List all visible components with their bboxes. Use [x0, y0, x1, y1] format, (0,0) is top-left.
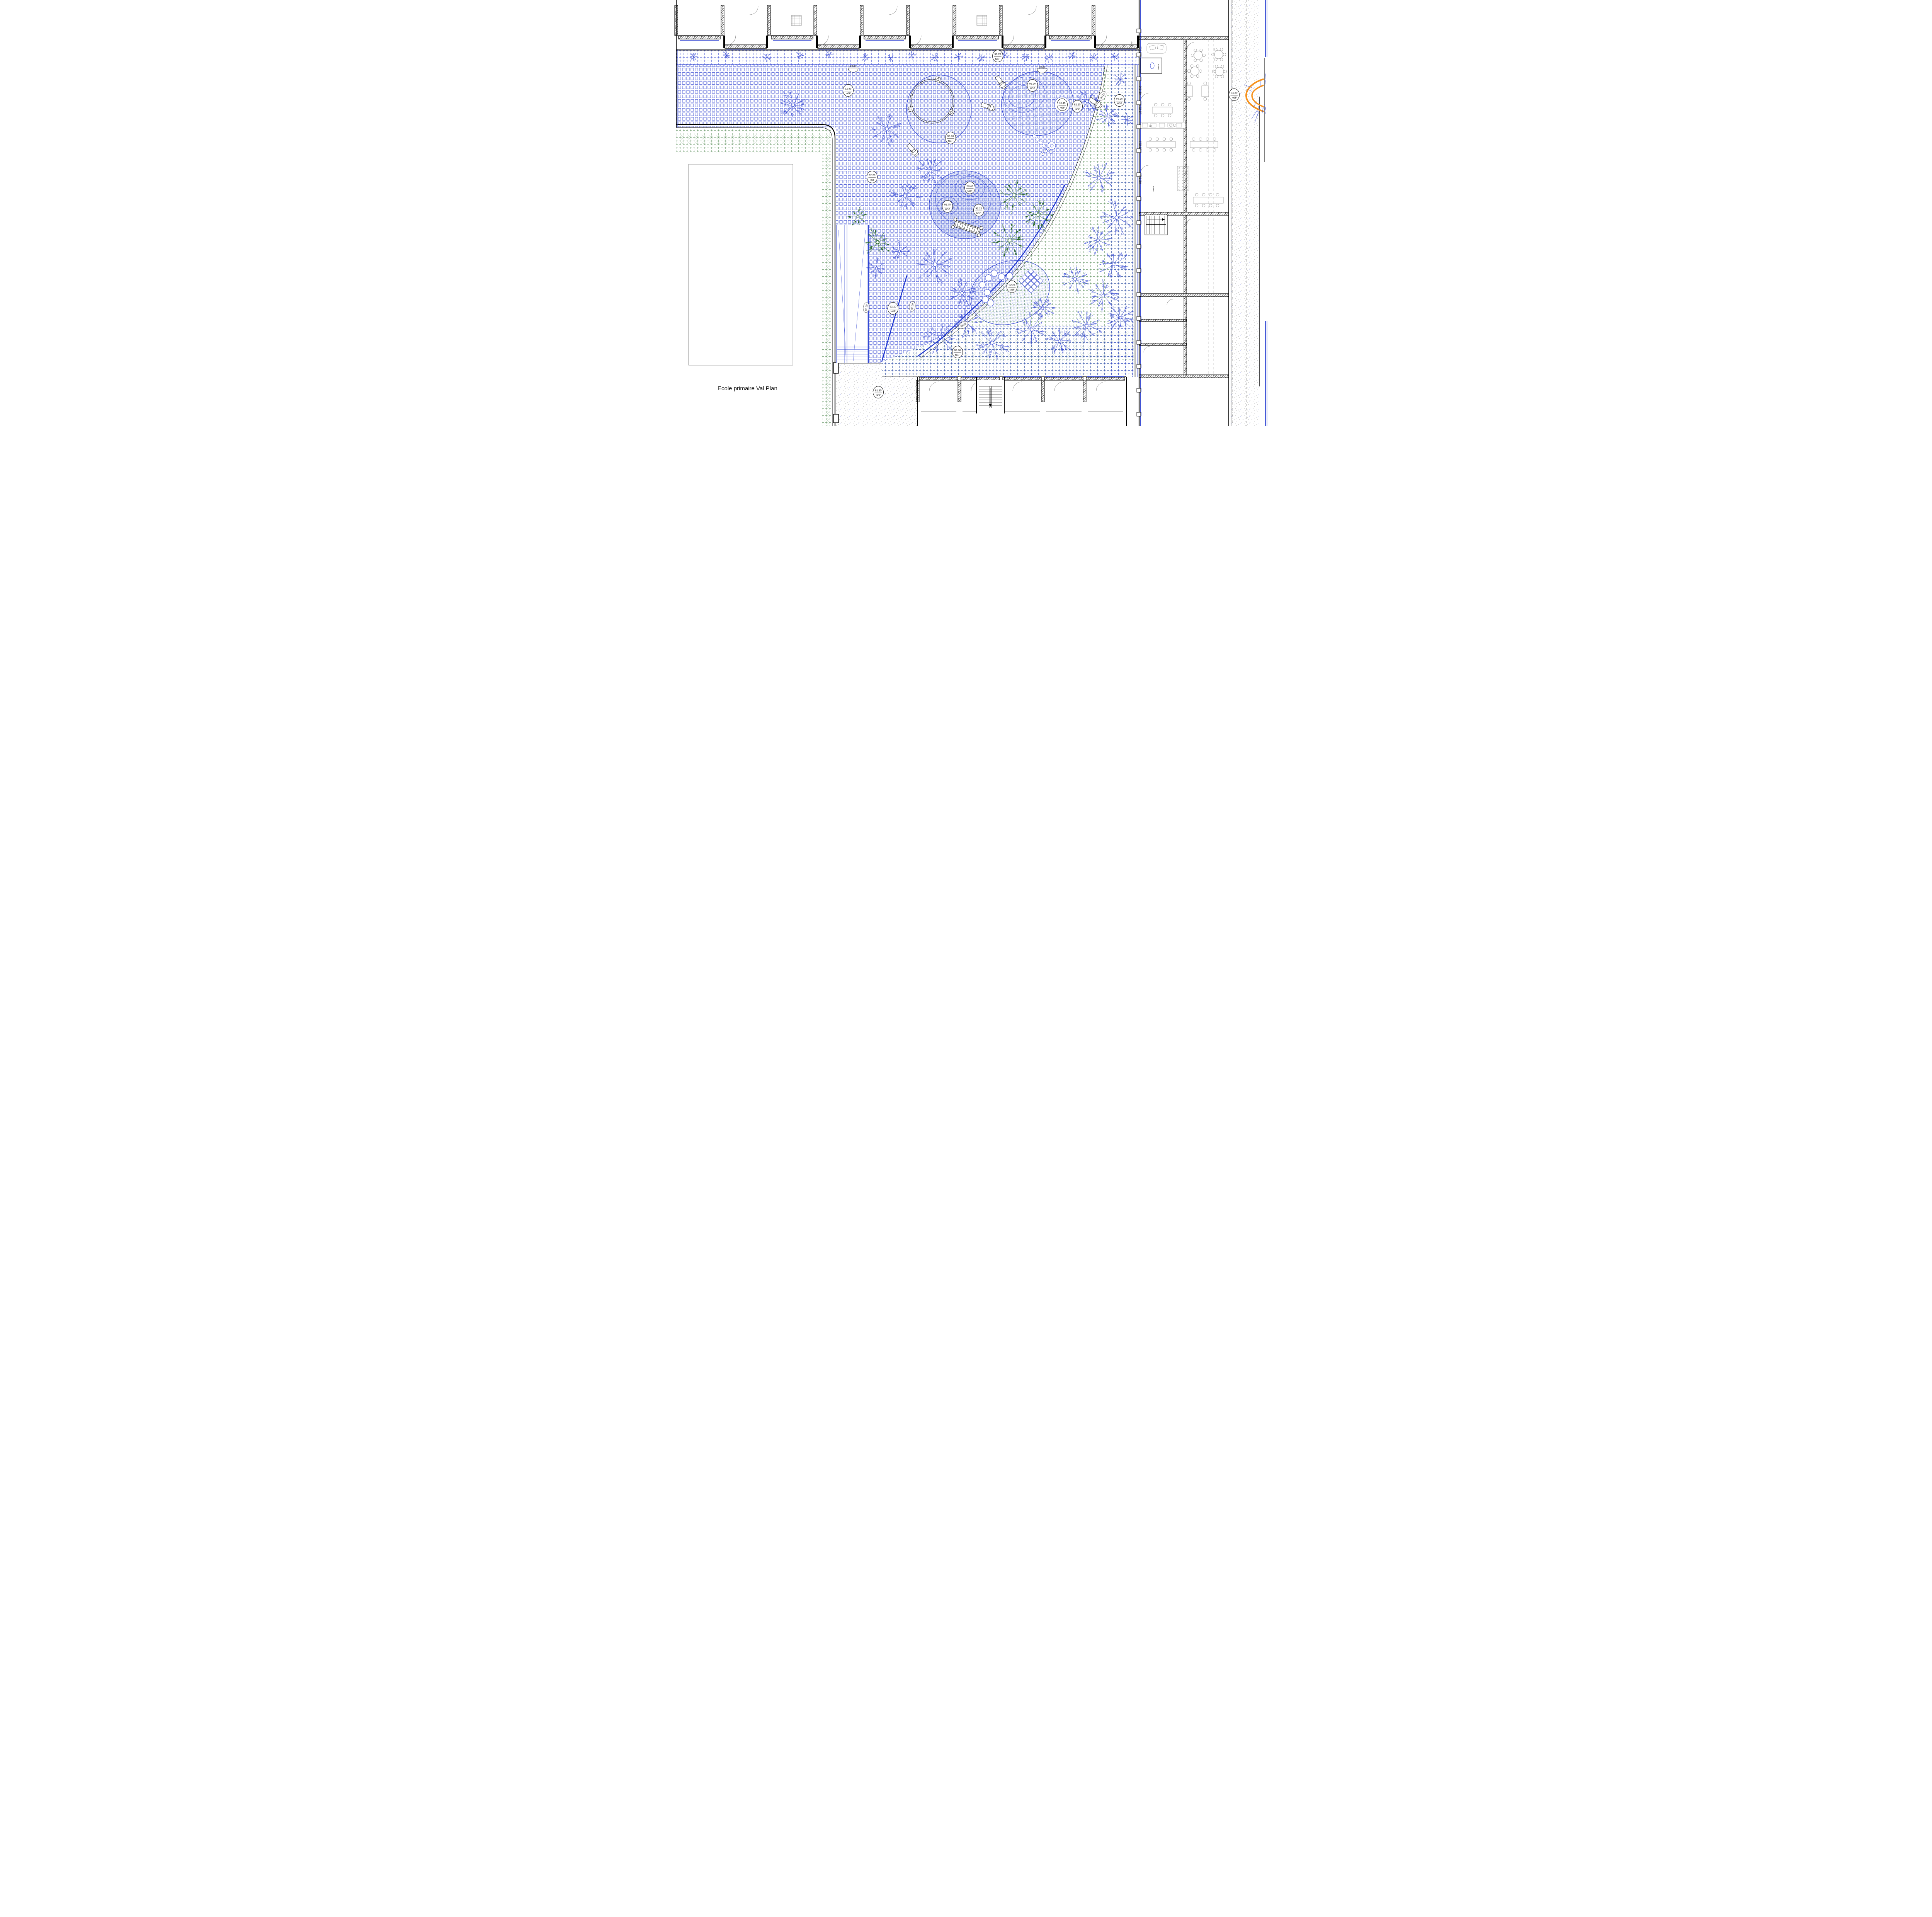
elevation-unit: NGF — [1117, 102, 1122, 105]
elevation-marker: 92.20NGF — [1027, 80, 1038, 92]
elevation-value: 92.45 — [845, 88, 851, 90]
elevation-value: 93.20 — [1039, 66, 1046, 68]
elevation-value: 92.25 — [975, 208, 982, 210]
facade-label: R07 — [1132, 41, 1134, 46]
plan-page: 8674 — [665, 0, 1267, 426]
elevation-marker: 92.20NGF — [867, 171, 878, 183]
elevation-marker: 92.45NGF — [843, 85, 854, 97]
mound-central — [929, 171, 1000, 239]
elevation-value: 92.20 — [869, 174, 875, 177]
elevation-marker: 93.25NGF — [1114, 95, 1125, 107]
elevation-marker: 92.20NGF — [888, 303, 898, 315]
elevation-unit: NGF — [876, 394, 881, 397]
room-annotation: 80x130 — [1153, 186, 1155, 192]
elevation-marker: 92.26NGF — [946, 132, 956, 144]
elevation-unit: NGF — [1009, 289, 1014, 291]
elevation-marker: 91.35NGF — [873, 386, 884, 398]
elevation-value: 92.70 — [994, 53, 1001, 56]
elevation-unit: NGF — [967, 190, 972, 192]
facade-label: ME E02 — [1140, 175, 1142, 184]
room-annotation: LV — [1149, 125, 1152, 128]
elevation-unit: NGF — [869, 179, 874, 182]
elevation-marker: 92.80NGF — [952, 346, 963, 358]
elevation-marker: 94.30NGF — [1229, 89, 1240, 101]
elevation-value: 93.25 — [1116, 98, 1122, 100]
mound-ring — [906, 75, 971, 143]
elevation-value: 92.25 — [1074, 104, 1080, 106]
facade-label: ME E02 — [1140, 141, 1142, 151]
facade-label: ME E02 — [1140, 86, 1142, 95]
elevation-unit: NGF — [1060, 107, 1065, 109]
elevation-value: 92.26 — [947, 135, 954, 138]
elevation-value: 92.24 — [1009, 284, 1015, 287]
elevation-value: 92.75 — [944, 204, 951, 206]
elevation-marker: 92.75NGF — [942, 201, 953, 213]
elevation-value: 94.30 — [1231, 92, 1237, 95]
elevation-value: 92.20 — [1029, 83, 1036, 85]
plan-title: Ecole primaire Val Plan — [718, 385, 777, 392]
elevation-unit: NGF — [955, 354, 960, 357]
elevation-marker: 92.25NGF — [1072, 100, 1083, 112]
elevation-marker: 93.45NGF — [965, 182, 975, 194]
right-building — [1137, 0, 1229, 426]
elevation-value: 91.35 — [875, 390, 881, 392]
elevation-value: 92.80 — [954, 349, 961, 352]
elevation-unit: NGF — [1030, 87, 1035, 90]
elevation-marker: 92.70NGF — [993, 50, 1003, 62]
elevation-marker: 92.25NGF — [974, 204, 984, 216]
elevation-unit: NGF — [995, 58, 1000, 61]
elevation-value: 92.20 — [889, 306, 896, 308]
elevation-unit: NGF — [976, 212, 981, 215]
elevation-unit: NGF — [1075, 108, 1080, 111]
elevation-marker: 93.45NGF — [1057, 99, 1068, 111]
elevation-unit: NGF — [890, 310, 895, 313]
elevation-value: 93.45 — [966, 185, 973, 188]
elevation-value: 93.45 — [1059, 102, 1065, 105]
facade-label: ME E02 — [1140, 46, 1142, 56]
facade-label: ME E02 — [1140, 105, 1142, 115]
ramp-path — [836, 225, 869, 363]
elevation-unit: NGF — [945, 208, 950, 211]
top-planting-strip — [676, 50, 1139, 65]
elevation-unit: NGF — [1231, 97, 1236, 99]
elevation-marker: 92.24NGF — [1007, 281, 1017, 293]
site-plan-drawing: 8674 — [665, 0, 1267, 426]
elevation-value: 93.20 — [850, 65, 857, 68]
elevation-unit: NGF — [948, 140, 953, 143]
elevation-unit: NGF — [845, 92, 850, 95]
room-annotation: 80x130 — [1158, 64, 1160, 70]
